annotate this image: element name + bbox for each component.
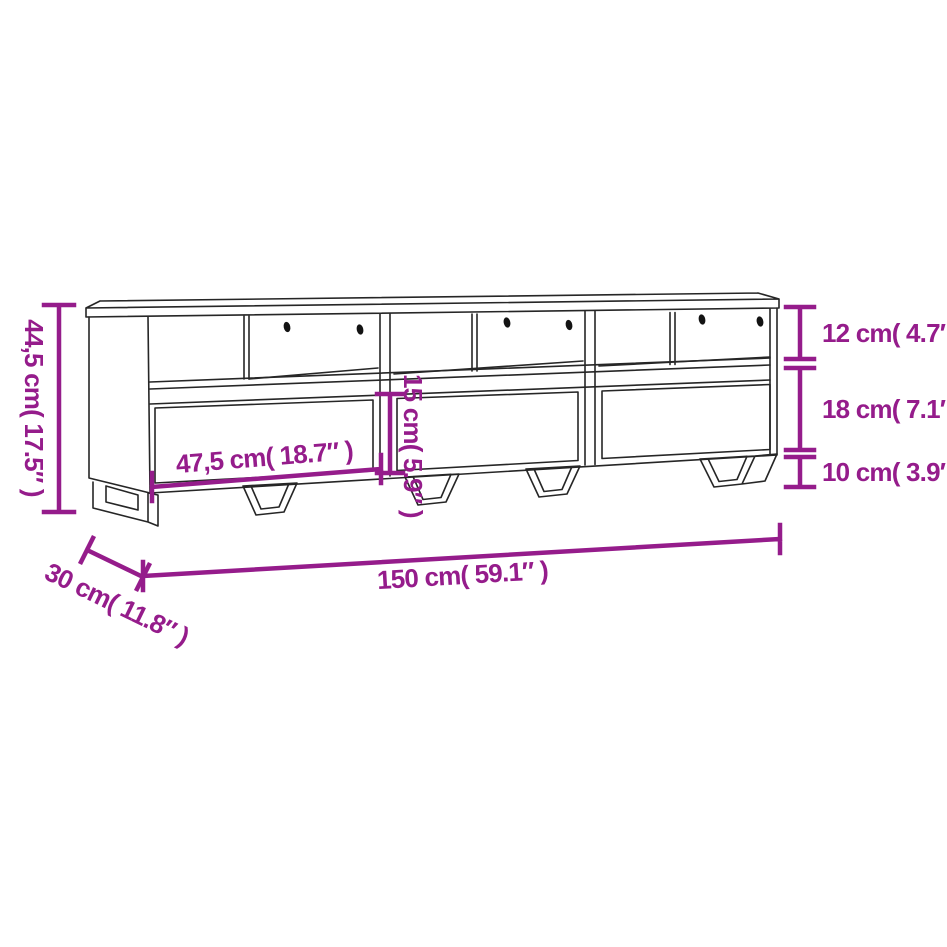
leg-2 <box>243 483 297 515</box>
dimension-label-total-height: 44,5 cm( 17.5″ ) <box>19 319 49 497</box>
dimension-arrow <box>786 368 814 450</box>
dimension-leg-height: 10 cm( 3.9″ ) <box>786 457 947 487</box>
dimension-drawer-front-height: 18 cm( 7.1″ ) <box>786 368 947 450</box>
dimension-arrow <box>786 307 814 359</box>
cabinet-shelf-lines <box>150 358 770 404</box>
cable-hole <box>283 321 292 333</box>
cable-hole <box>756 316 765 328</box>
dimension-label-drawer-front-height: 18 cm( 7.1″ ) <box>822 394 947 424</box>
drawer-front-3 <box>602 385 770 459</box>
cable-hole <box>565 319 574 331</box>
cable-hole <box>503 317 512 329</box>
cable-hole <box>698 314 707 326</box>
dimension-label-compartment-height: 12 cm( 4.7″ ) <box>822 318 947 348</box>
dimension-arrow <box>786 457 814 487</box>
diagram-canvas: 44,5 cm( 17.5″ ) 12 cm( 4.7″ ) 18 cm( 7.… <box>0 0 947 947</box>
dimension-drawer-opening-height: 15 cm( 5.9″ ) <box>377 374 428 518</box>
dimension-depth: 30 cm( 11.8″ ) <box>40 538 194 651</box>
cable-holes <box>283 314 765 336</box>
leg-4 <box>526 466 580 497</box>
product-dimension-image: 44,5 cm( 17.5″ ) 12 cm( 4.7″ ) 18 cm( 7.… <box>0 0 947 947</box>
cabinet-drawing <box>86 293 779 526</box>
dimension-total-width: 150 cm( 59.1″ ) <box>143 525 780 595</box>
leg-right <box>700 454 777 487</box>
cable-hole <box>356 324 365 336</box>
dimension-label-depth: 30 cm( 11.8″ ) <box>40 556 194 651</box>
dimension-total-height: 44,5 cm( 17.5″ ) <box>19 305 74 512</box>
dimension-label-drawer-opening-height: 15 cm( 5.9″ ) <box>398 374 428 518</box>
dimension-compartment-height: 12 cm( 4.7″ ) <box>786 307 947 359</box>
dimension-label-leg-height: 10 cm( 3.9″ ) <box>822 457 947 487</box>
leg-left <box>93 482 158 526</box>
